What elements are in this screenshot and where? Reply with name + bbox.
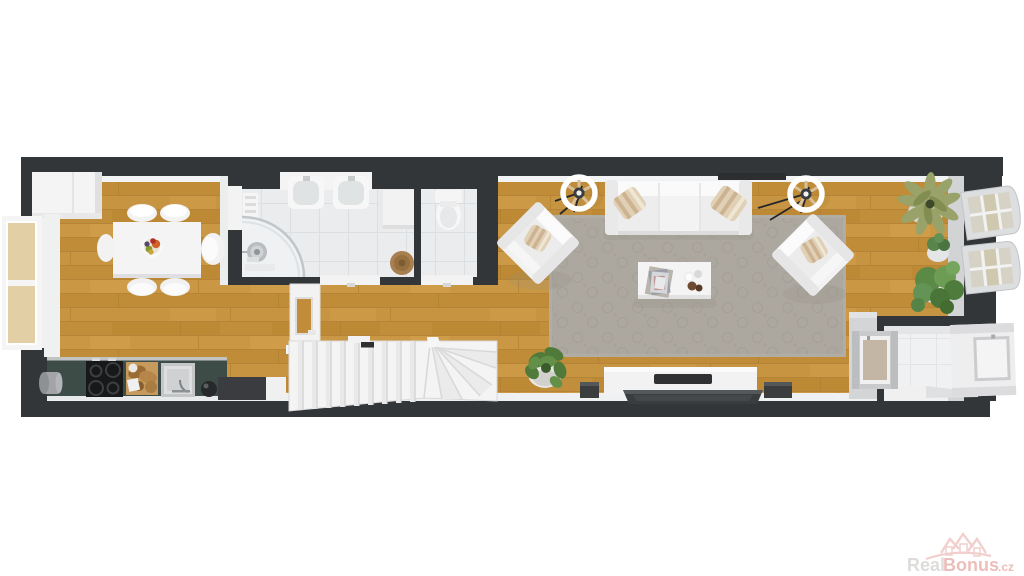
svg-text:.cz: .cz bbox=[998, 560, 1014, 574]
svg-text:Bonus: Bonus bbox=[943, 555, 999, 575]
svg-text:Real: Real bbox=[907, 555, 945, 575]
